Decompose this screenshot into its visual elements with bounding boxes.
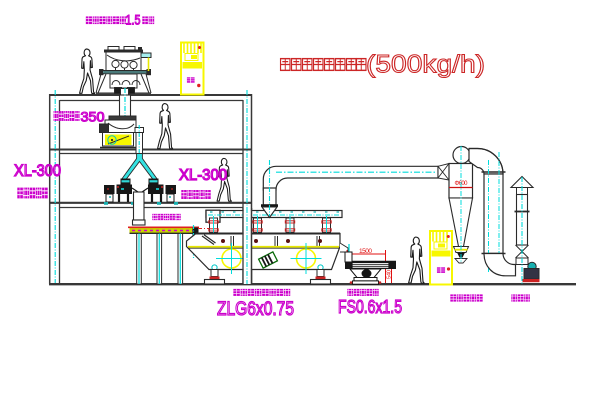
svg-text:FS0.6x1.5: FS0.6x1.5 bbox=[338, 297, 402, 317]
svg-text:(500kg/h): (500kg/h) bbox=[366, 51, 485, 79]
svg-text:XL-300: XL-300 bbox=[179, 167, 227, 184]
svg-text:1500: 1500 bbox=[359, 248, 372, 255]
svg-text:540: 540 bbox=[387, 270, 393, 279]
svg-text:XL-300: XL-300 bbox=[14, 161, 61, 180]
svg-text:350: 350 bbox=[81, 110, 105, 125]
svg-text:ZLG6x0.75: ZLG6x0.75 bbox=[217, 299, 294, 320]
svg-text:1.5: 1.5 bbox=[126, 13, 141, 28]
